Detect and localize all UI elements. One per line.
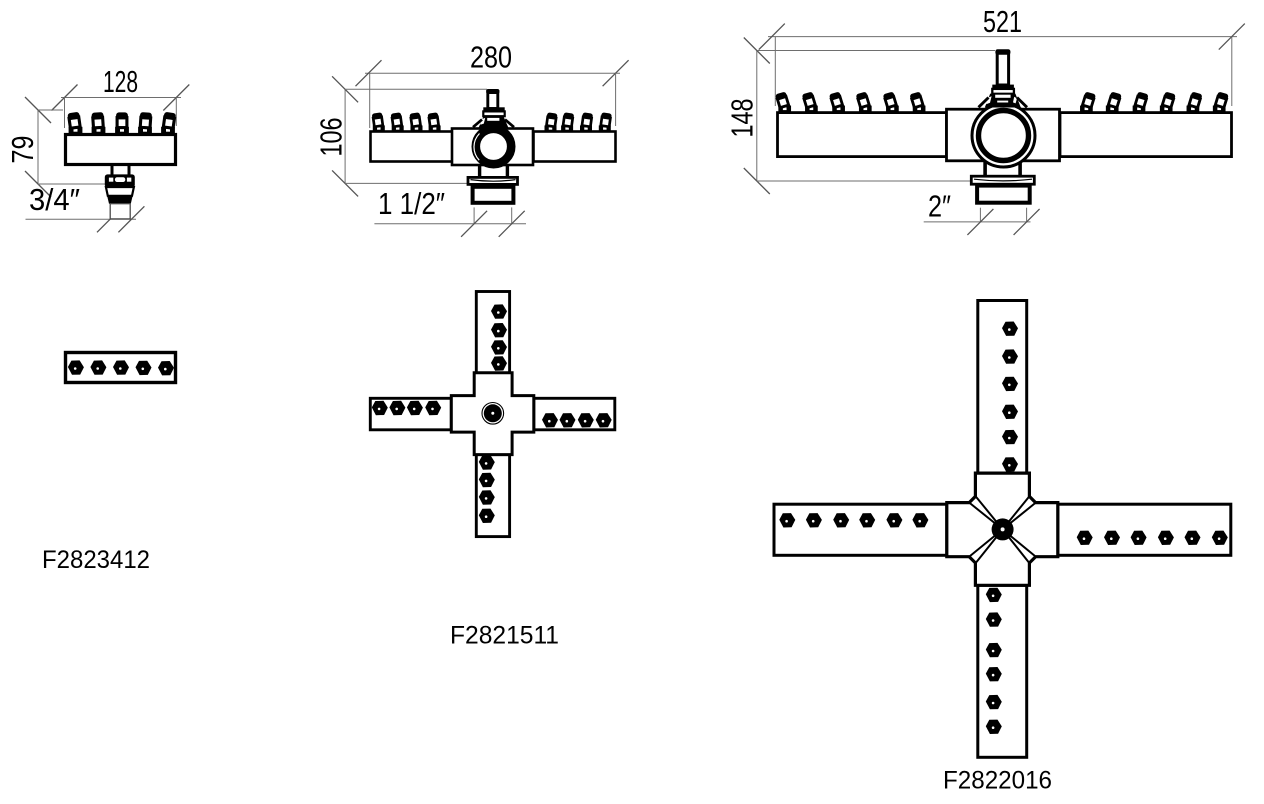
svg-text:2″: 2″ <box>928 188 951 223</box>
svg-text:521: 521 <box>983 4 1022 39</box>
svg-text:79: 79 <box>5 136 40 164</box>
svg-text:F2823412: F2823412 <box>42 546 150 574</box>
svg-text:3/4″: 3/4″ <box>29 182 80 217</box>
svg-text:106: 106 <box>314 118 349 157</box>
svg-text:280: 280 <box>470 40 512 75</box>
svg-text:F2822016: F2822016 <box>943 767 1052 795</box>
svg-text:148: 148 <box>725 99 760 138</box>
svg-text:F2821511: F2821511 <box>450 622 559 650</box>
svg-text:1 1/2″: 1 1/2″ <box>378 186 445 221</box>
svg-text:128: 128 <box>103 64 138 99</box>
